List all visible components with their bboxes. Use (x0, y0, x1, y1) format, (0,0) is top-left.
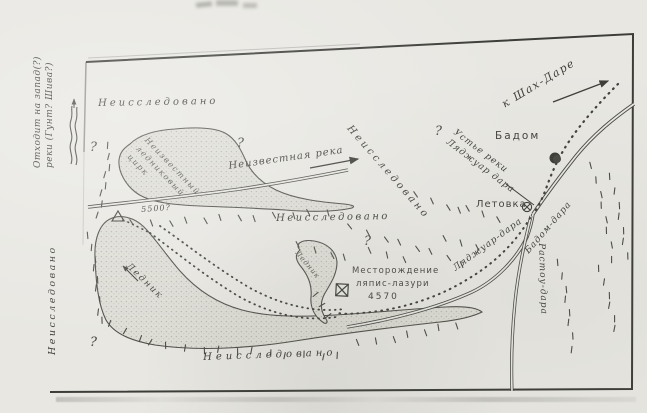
question-mark-4: ? (364, 235, 371, 248)
scan-smudge (216, 0, 238, 6)
question-mark-3: ? (435, 125, 442, 138)
label-river-rastou-dara: Растоу-дара (536, 243, 548, 315)
label-camp-letovka: Летовка (476, 200, 527, 210)
label-unexplored-top: Неисследовано (98, 97, 218, 109)
margin-note-line1: Отходит на запад(?) (32, 56, 44, 168)
label-village-badom: Бадом (495, 131, 540, 142)
badom-village-dot (550, 153, 562, 164)
question-mark-1: ? (90, 141, 97, 154)
deposit-symbol (336, 284, 349, 297)
scan-smudge (243, 3, 257, 8)
label-unexplored-center: Неисследовано (276, 212, 390, 224)
label-deposit-line2: ляпис-лазури (356, 280, 430, 289)
label-deposit-line1: Месторождение (352, 267, 439, 276)
question-mark-2: ? (237, 137, 244, 150)
shahdara-arrow (553, 81, 608, 102)
margin-note-line2: реки (Гунт? Шива?) (44, 56, 56, 168)
label-unexplored-left: Неисследовано (48, 245, 58, 355)
wavy-river-arrow (70, 99, 77, 165)
label-deposit-elevation: 4570 (368, 293, 399, 302)
question-mark-5: ? (90, 336, 97, 349)
sketch-map-scan: Отходит на запад(?) реки (Гунт? Шива?) Н… (0, 0, 647, 413)
margin-note: Отходит на запад(?) реки (Гунт? Шива?) (32, 56, 56, 168)
unknown-river-arrow (310, 159, 358, 168)
scan-streak (56, 397, 636, 402)
